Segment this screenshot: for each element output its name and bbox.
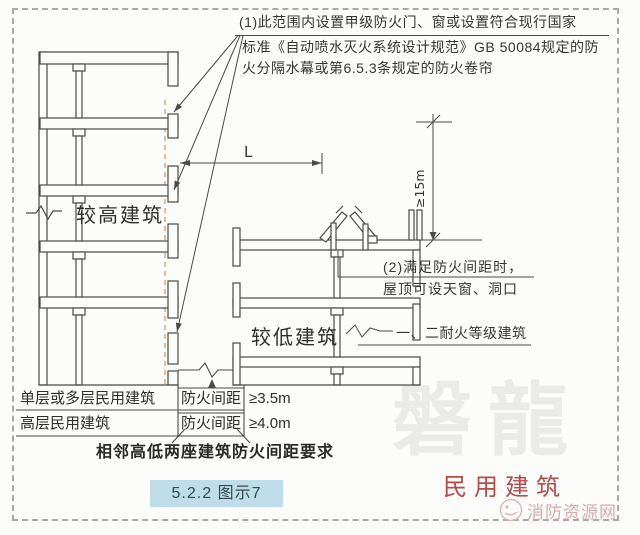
- high-building-label: 较高建筑: [76, 204, 164, 229]
- site-logo-icon: [501, 500, 522, 521]
- table-row1-building-type: 单层或多层民用建筑: [20, 390, 155, 409]
- table-row1-dim-label: 防火间距: [181, 390, 241, 409]
- note-1-line-3: 火分隔水幕或第6.5.3条规定的防火卷帘: [242, 60, 493, 78]
- category-label: 民用建筑: [443, 467, 567, 502]
- site-watermark-text: 消防资源网: [527, 498, 617, 523]
- table-caption: 相邻高低两座建筑防火间距要求: [96, 443, 334, 463]
- figure-canvas: 磐龍: [0, 0, 640, 535]
- distance-dim-text: L: [244, 143, 253, 161]
- note-1-line-1: (1)此范围内设置甲级防火门、窗或设置符合现行国家: [239, 14, 577, 32]
- note-2-line-2: 屋顶可设天窗、洞口: [383, 281, 518, 299]
- low-building-label: 较低建筑: [251, 326, 339, 351]
- ground-break-line: [178, 363, 233, 377]
- table-row2-dim-label: 防火间距: [181, 415, 241, 434]
- fire-resistance-label: 一、二耐火等级建筑: [396, 325, 527, 343]
- height-dim-text: ≥15m: [412, 169, 427, 208]
- table-row1-value: ≥3.5m: [249, 390, 291, 409]
- table-row2-value: ≥4.0m: [249, 415, 291, 434]
- note-2-line-1: (2)满足防火间距时，: [383, 259, 523, 277]
- figure-reference-badge: 5.2.2 图示7: [150, 480, 283, 507]
- table-row2-building-type: 高层民用建筑: [20, 415, 110, 434]
- note-1-line-2: 标准《自动喷水灭火系统设计规范》GB 50084规定的防: [242, 39, 599, 57]
